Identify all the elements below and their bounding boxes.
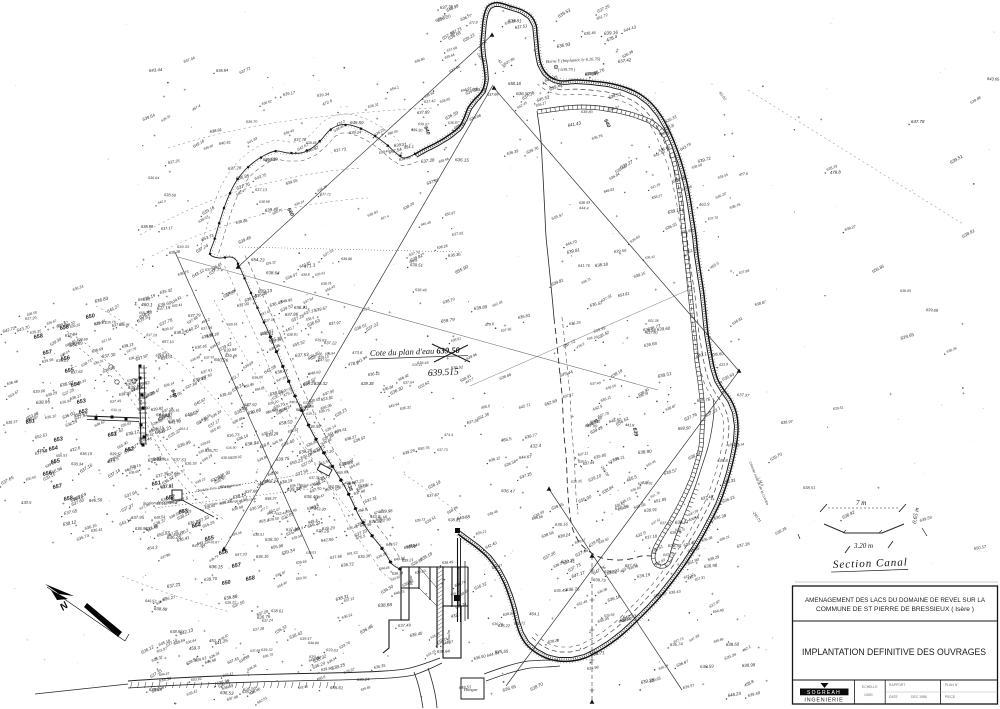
svg-text:637.49: 637.49 — [398, 623, 412, 628]
svg-text:636.47: 636.47 — [501, 488, 516, 494]
svg-text:640.61: 640.61 — [218, 139, 231, 146]
svg-text:431.5: 431.5 — [177, 495, 189, 503]
svg-text:Chemin rural dit de la Combe: Chemin rural dit de la Combe — [748, 461, 769, 506]
svg-text:659.79: 659.79 — [440, 317, 455, 324]
svg-text:638.88: 638.88 — [190, 355, 201, 363]
svg-text:637.28: 637.28 — [253, 627, 266, 632]
svg-text:636.59: 636.59 — [444, 110, 459, 121]
svg-text:640.26: 640.26 — [214, 357, 229, 363]
svg-text:636.41: 636.41 — [412, 363, 422, 367]
svg-text:639.34: 639.34 — [326, 656, 337, 665]
svg-text:460.5: 460.5 — [357, 507, 368, 513]
svg-text:643.65: 643.65 — [987, 76, 1000, 82]
svg-text:638.98: 638.98 — [141, 390, 156, 400]
svg-text:638.51: 638.51 — [803, 485, 816, 490]
svg-text:658: 658 — [33, 333, 44, 341]
svg-text:636.53: 636.53 — [220, 690, 234, 696]
svg-text:636.21: 636.21 — [368, 371, 381, 377]
svg-text:639.70: 639.70 — [204, 576, 218, 582]
svg-text:650.57: 650.57 — [973, 544, 987, 551]
svg-text:638.37: 638.37 — [607, 105, 620, 112]
svg-text:636.55: 636.55 — [664, 221, 678, 231]
svg-text:636.25: 636.25 — [715, 192, 727, 200]
svg-text:647.78: 647.78 — [911, 119, 925, 124]
svg-text:639.75: 639.75 — [318, 408, 330, 414]
svg-text:636.21: 636.21 — [719, 535, 730, 542]
svg-text:636.16: 636.16 — [256, 554, 269, 559]
svg-text:656.53: 656.53 — [56, 453, 68, 458]
svg-text:639.33: 639.33 — [177, 244, 190, 249]
svg-text:646.67: 646.67 — [193, 396, 207, 407]
svg-text:637.70: 637.70 — [708, 216, 719, 221]
svg-text:636.86: 636.86 — [235, 218, 248, 225]
svg-text:637.24: 637.24 — [195, 243, 210, 254]
svg-text:637.43: 637.43 — [260, 309, 271, 317]
svg-text:637.29: 637.29 — [65, 418, 79, 428]
svg-text:649.52: 649.52 — [145, 599, 156, 603]
svg-text:642.40: 642.40 — [484, 540, 498, 550]
svg-text:638.64: 638.64 — [266, 270, 280, 275]
svg-text:641.94: 641.94 — [355, 354, 369, 365]
svg-text:639.64: 639.64 — [345, 481, 356, 485]
svg-text:638.77: 638.77 — [524, 432, 538, 440]
svg-text:639.53: 639.53 — [557, 7, 572, 19]
svg-text:639.41: 639.41 — [222, 671, 234, 678]
svg-text:639.73: 639.73 — [593, 577, 607, 583]
svg-text:639.96: 639.96 — [466, 352, 479, 361]
svg-text:654.40: 654.40 — [712, 608, 724, 614]
svg-text:636.70: 636.70 — [246, 120, 258, 124]
svg-text:637.73: 637.73 — [333, 146, 347, 153]
svg-text:637.70: 637.70 — [597, 410, 611, 419]
svg-text:646.56: 646.56 — [89, 497, 103, 503]
svg-text:-50.02: -50.02 — [717, 90, 727, 102]
svg-text:642.71: 642.71 — [518, 402, 531, 410]
svg-text:COMMUNE DE ST PIERRE DE BRESSI: COMMUNE DE ST PIERRE DE BRESSIEUX ( Isèr… — [816, 606, 974, 613]
svg-text:473.5: 473.5 — [361, 306, 370, 313]
svg-text:639.32: 639.32 — [159, 287, 173, 295]
svg-text:651: 651 — [107, 431, 117, 439]
svg-text:653.61: 653.61 — [191, 677, 202, 682]
svg-text:636.57: 636.57 — [585, 71, 599, 76]
svg-text:639.23: 639.23 — [462, 32, 476, 43]
svg-text:639.96: 639.96 — [468, 112, 482, 122]
svg-text:652.48: 652.48 — [576, 599, 589, 607]
svg-text:655.90: 655.90 — [454, 264, 469, 275]
svg-text:638.40: 638.40 — [409, 630, 423, 638]
svg-text:636.20: 636.20 — [376, 552, 388, 560]
svg-text:656.85: 656.85 — [871, 263, 885, 274]
svg-text:639.51: 639.51 — [657, 371, 672, 379]
svg-text:637.35: 637.35 — [440, 4, 454, 10]
svg-text:639.93: 639.93 — [314, 271, 325, 277]
svg-text:440.7: 440.7 — [284, 324, 296, 333]
svg-text:636.74: 636.74 — [670, 641, 684, 647]
svg-text:637.28: 637.28 — [228, 165, 242, 171]
svg-text:636.55: 636.55 — [605, 384, 617, 391]
svg-text:651: 651 — [25, 418, 35, 426]
svg-text:636.87: 636.87 — [369, 519, 383, 524]
svg-text:655.96: 655.96 — [270, 543, 284, 550]
svg-text:637.19: 637.19 — [157, 305, 171, 311]
svg-text:638.91: 638.91 — [961, 228, 976, 239]
svg-text:-52.98: -52.98 — [496, 58, 507, 69]
svg-text:639.68: 639.68 — [247, 407, 262, 416]
svg-text:636.15: 636.15 — [455, 157, 470, 163]
svg-text:637.89: 637.89 — [417, 109, 430, 115]
svg-text:AMENAGEMENT DES LACS DU DOMAIN: AMENAGEMENT DES LACS DU DOMAINE DE REVEL… — [805, 597, 986, 604]
svg-text:638.70: 638.70 — [442, 296, 456, 305]
svg-text:639.19: 639.19 — [636, 572, 651, 579]
svg-text:459.3: 459.3 — [189, 645, 201, 651]
svg-text:639.43: 639.43 — [283, 129, 294, 136]
svg-text:432.4: 432.4 — [530, 443, 542, 449]
svg-text:641.76: 641.76 — [578, 263, 591, 268]
svg-text:639.17: 639.17 — [282, 90, 296, 97]
svg-text:639.70: 639.70 — [769, 451, 783, 462]
svg-text:639.10: 639.10 — [587, 473, 602, 483]
svg-text:649.63: 649.63 — [603, 187, 614, 194]
svg-text:639.98: 639.98 — [308, 641, 319, 645]
svg-text:639.98: 639.98 — [586, 664, 599, 671]
svg-text:455.5: 455.5 — [626, 474, 639, 483]
svg-text:478.9: 478.9 — [576, 342, 586, 350]
svg-text:638.90: 638.90 — [638, 449, 653, 455]
svg-text:Borne Y (Implantée le 6.10.76): Borne Y (Implantée le 6.10.76) — [546, 56, 601, 64]
svg-text:637.37: 637.37 — [120, 502, 135, 513]
svg-text:638.87: 638.87 — [665, 404, 678, 412]
svg-text:638.65: 638.65 — [900, 289, 911, 293]
svg-text:639.59: 639.59 — [919, 515, 933, 523]
svg-text:ferme: ferme — [408, 575, 413, 585]
svg-text:637.22: 637.22 — [324, 340, 337, 345]
svg-text:639.76: 639.76 — [525, 145, 539, 155]
svg-text:636.83: 636.83 — [367, 210, 379, 218]
svg-text:639.24: 639.24 — [557, 532, 571, 539]
svg-text:639.18: 639.18 — [242, 360, 254, 370]
svg-text:637.14: 637.14 — [107, 467, 122, 478]
svg-text:460.1: 460.1 — [141, 302, 153, 307]
svg-text:653.62: 653.62 — [417, 379, 431, 390]
svg-text:636.29: 636.29 — [569, 319, 582, 326]
svg-text:640: 640 — [422, 126, 431, 136]
svg-text:636.27: 636.27 — [162, 594, 176, 602]
svg-text:636.92: 636.92 — [841, 509, 856, 520]
svg-text:645.48: 645.48 — [420, 220, 431, 227]
svg-text:639.15: 639.15 — [633, 270, 647, 279]
svg-text:636.10: 636.10 — [44, 414, 57, 420]
svg-text:647.30: 647.30 — [276, 375, 287, 383]
svg-text:652.69: 652.69 — [544, 398, 559, 407]
svg-text:639.68: 639.68 — [713, 637, 724, 644]
svg-text:639.64: 639.64 — [444, 53, 455, 60]
svg-text:641.43: 641.43 — [567, 120, 582, 128]
svg-text:637.25: 637.25 — [167, 158, 180, 165]
svg-text:473.6: 473.6 — [352, 350, 363, 355]
svg-text:637.51: 637.51 — [514, 23, 527, 30]
svg-text:649.94: 649.94 — [388, 402, 400, 409]
svg-text:636.83: 636.83 — [120, 421, 131, 428]
svg-text:637.42: 637.42 — [424, 99, 437, 104]
svg-text:653.81: 653.81 — [617, 291, 630, 298]
svg-text:464.3: 464.3 — [146, 544, 158, 551]
svg-text:646.27: 646.27 — [106, 303, 120, 314]
svg-text:639.51: 639.51 — [949, 154, 964, 165]
svg-text:651.36: 651.36 — [648, 319, 659, 323]
svg-text:637.66: 637.66 — [487, 92, 500, 97]
svg-text:653: 653 — [53, 436, 64, 444]
svg-text:638.81: 638.81 — [209, 127, 222, 134]
svg-text:636.14: 636.14 — [163, 381, 175, 388]
svg-text:636.73: 636.73 — [227, 432, 241, 438]
svg-text:638.68: 638.68 — [378, 602, 393, 608]
svg-text:638.33: 638.33 — [608, 91, 622, 100]
svg-text:638.46: 638.46 — [254, 290, 269, 299]
svg-text:465.5: 465.5 — [500, 436, 512, 443]
svg-text:639.56: 639.56 — [614, 248, 628, 254]
svg-text:638.50: 638.50 — [726, 642, 740, 647]
svg-text:639.14: 639.14 — [294, 199, 305, 207]
svg-text:655.61: 655.61 — [330, 685, 344, 690]
svg-text:639.81: 639.81 — [566, 247, 581, 255]
svg-text:639.16: 639.16 — [201, 205, 216, 216]
svg-text:637.43: 637.43 — [227, 656, 241, 665]
svg-text:647.89: 647.89 — [689, 634, 701, 643]
svg-text:636.31: 636.31 — [367, 103, 379, 109]
svg-text:638.85: 638.85 — [439, 97, 451, 104]
svg-text:464.4: 464.4 — [179, 427, 188, 431]
svg-text:638.71: 638.71 — [80, 358, 93, 368]
svg-text:637.95: 637.95 — [500, 327, 511, 333]
svg-text:637.31: 637.31 — [364, 495, 378, 504]
svg-text:637.97: 637.97 — [329, 320, 342, 326]
svg-text:638.18: 638.18 — [595, 261, 609, 268]
svg-text:651.29: 651.29 — [620, 617, 633, 622]
svg-text:639.84: 639.84 — [604, 613, 615, 618]
svg-text:637.78: 637.78 — [159, 317, 174, 327]
svg-text:641.29: 641.29 — [650, 182, 661, 190]
svg-text:636.90: 636.90 — [226, 446, 237, 450]
svg-text:636.51: 636.51 — [341, 613, 353, 620]
svg-text:650.66: 650.66 — [25, 475, 36, 482]
svg-text:636.33: 636.33 — [72, 284, 85, 292]
svg-text:458.8: 458.8 — [743, 678, 755, 688]
svg-text:637.33: 637.33 — [322, 248, 335, 258]
svg-text:639.30: 639.30 — [411, 128, 423, 132]
svg-text:658.81: 658.81 — [254, 386, 265, 392]
svg-text:637.18: 637.18 — [286, 526, 300, 532]
svg-text:639.70: 639.70 — [338, 639, 352, 649]
svg-text:636.39: 636.39 — [506, 148, 520, 156]
svg-text:638.31: 638.31 — [321, 281, 332, 286]
svg-text:454.1: 454.1 — [389, 84, 400, 92]
svg-text:636.65: 636.65 — [194, 343, 208, 350]
svg-text:N: N — [58, 600, 71, 614]
svg-text:636.19: 636.19 — [80, 451, 93, 456]
svg-text:636.66: 636.66 — [252, 375, 264, 380]
svg-text:636.84: 636.84 — [609, 172, 621, 181]
svg-text:639.51: 639.51 — [410, 262, 423, 268]
svg-text:636.50: 636.50 — [380, 584, 395, 595]
svg-text:647.17: 647.17 — [571, 570, 586, 579]
svg-text:638.43: 638.43 — [669, 588, 682, 595]
svg-text:638.61: 638.61 — [271, 608, 283, 613]
svg-text:638.48: 638.48 — [415, 288, 428, 292]
svg-text:636.16: 636.16 — [555, 522, 569, 527]
svg-text:659.50: 659.50 — [678, 425, 692, 431]
svg-text:649.19: 649.19 — [201, 454, 213, 463]
svg-text:636.22: 636.22 — [498, 623, 511, 628]
svg-text:639.40: 639.40 — [281, 438, 296, 448]
svg-text:RAPPORT: RAPPORT — [889, 683, 905, 687]
svg-text:639.51: 639.51 — [424, 514, 437, 524]
svg-text:637.90: 637.90 — [236, 301, 250, 308]
svg-text:638.58: 638.58 — [691, 163, 703, 170]
svg-text:638.56: 638.56 — [541, 530, 555, 539]
svg-text:644.67: 644.67 — [519, 454, 533, 460]
svg-text:638.66: 638.66 — [499, 371, 513, 381]
svg-text:650.90: 650.90 — [296, 576, 307, 581]
svg-text:638.57: 638.57 — [663, 467, 678, 476]
svg-text:658.37: 658.37 — [265, 497, 278, 501]
svg-text:639.38: 639.38 — [361, 381, 374, 386]
svg-text:653: 653 — [76, 398, 87, 406]
svg-text:636.29: 636.29 — [553, 560, 565, 569]
svg-text:433.9: 433.9 — [719, 362, 728, 367]
svg-text:639.72: 639.72 — [697, 156, 712, 164]
svg-text:641.83: 641.83 — [247, 136, 258, 144]
svg-text:638.65: 638.65 — [590, 419, 601, 424]
svg-text:Moulin: Moulin — [446, 629, 451, 644]
svg-text:644.43: 644.43 — [623, 24, 637, 33]
svg-text:638.36: 638.36 — [448, 252, 462, 258]
svg-text:462.2: 462.2 — [742, 645, 752, 653]
svg-text:Conduite PVC 125 refoulement: Conduite PVC 125 refoulement — [196, 483, 243, 493]
svg-text:639.31: 639.31 — [160, 114, 171, 123]
svg-text:463.9: 463.9 — [699, 201, 710, 207]
svg-text:643.12: 643.12 — [191, 267, 206, 278]
svg-text:644.70: 644.70 — [565, 239, 578, 247]
svg-text:636.58: 636.58 — [308, 424, 321, 429]
svg-text:655.49: 655.49 — [243, 382, 254, 389]
svg-text:639.23: 639.23 — [334, 407, 348, 418]
svg-text:( 639.79 ): ( 639.79 ) — [558, 67, 576, 72]
svg-text:638.22: 638.22 — [195, 477, 206, 485]
svg-text:637.51: 637.51 — [101, 337, 112, 344]
svg-text:653.67: 653.67 — [8, 389, 21, 399]
svg-text:638.31: 638.31 — [111, 408, 122, 412]
svg-text:638.12: 638.12 — [62, 519, 77, 527]
svg-text:636.80: 636.80 — [414, 57, 425, 64]
svg-text:658.27: 658.27 — [651, 193, 663, 200]
svg-text:639.32: 639.32 — [265, 260, 276, 266]
svg-text:658.89: 658.89 — [447, 505, 460, 515]
svg-text:637.81: 637.81 — [451, 230, 464, 237]
svg-text:639.50: 639.50 — [414, 569, 426, 575]
svg-text:636.72: 636.72 — [340, 561, 354, 568]
svg-text:464.1: 464.1 — [529, 611, 540, 617]
svg-text:639.80: 639.80 — [593, 452, 607, 460]
svg-text:637.72: 637.72 — [238, 65, 252, 75]
svg-text:636.80: 636.80 — [630, 486, 641, 493]
svg-text:649.73: 649.73 — [393, 590, 405, 596]
svg-text:637.54: 637.54 — [303, 297, 314, 305]
svg-text:638.40: 638.40 — [219, 390, 233, 398]
svg-text:637.18: 637.18 — [644, 533, 658, 540]
svg-text:636.83: 636.83 — [517, 312, 531, 320]
svg-text:636.35: 636.35 — [373, 662, 386, 670]
svg-text:639.515: 639.515 — [428, 367, 460, 379]
svg-text:637.31: 637.31 — [309, 476, 320, 480]
svg-text:644.45: 644.45 — [379, 566, 390, 571]
svg-text:434.8: 434.8 — [301, 273, 310, 277]
svg-text:638.43: 638.43 — [579, 201, 590, 205]
svg-text:636.15: 636.15 — [209, 564, 223, 569]
svg-text:651.89: 651.89 — [653, 496, 667, 504]
svg-text:636.31: 636.31 — [400, 405, 412, 411]
svg-text:652.48: 652.48 — [492, 300, 503, 308]
svg-text:637.65: 637.65 — [0, 475, 15, 486]
svg-text:639.45: 639.45 — [306, 141, 316, 145]
svg-text:649.44: 649.44 — [559, 369, 574, 378]
svg-text:DATE: DATE — [889, 695, 899, 699]
svg-text:465.6: 465.6 — [259, 518, 271, 524]
svg-text:637.21: 637.21 — [166, 582, 181, 589]
svg-text:657: 657 — [52, 483, 63, 491]
svg-text:637.33: 637.33 — [608, 457, 620, 465]
svg-text:637.66: 637.66 — [330, 553, 344, 560]
svg-text:637.40: 637.40 — [590, 381, 601, 386]
svg-text:636.98: 636.98 — [597, 587, 608, 595]
svg-text:655.89: 655.89 — [337, 470, 348, 475]
svg-text:1/500: 1/500 — [864, 693, 873, 697]
svg-text:652.45: 652.45 — [516, 101, 527, 110]
svg-text:637.11: 637.11 — [577, 451, 588, 457]
svg-text:639.91: 639.91 — [185, 656, 198, 666]
svg-text:639.60: 639.60 — [629, 235, 640, 244]
svg-text:639.63: 639.63 — [326, 647, 339, 653]
svg-text:639.57: 639.57 — [110, 452, 123, 456]
svg-text:636.32: 636.32 — [645, 255, 656, 260]
svg-text:639.39: 639.39 — [265, 156, 279, 163]
svg-text:638.46: 638.46 — [584, 30, 597, 36]
svg-text:638.47: 638.47 — [274, 368, 288, 375]
svg-text:637.45: 637.45 — [574, 547, 589, 558]
svg-text:637.37: 637.37 — [737, 392, 750, 398]
svg-text:637.73: 637.73 — [437, 448, 448, 452]
svg-text:638.89: 638.89 — [387, 129, 398, 136]
svg-text:636.26: 636.26 — [946, 346, 957, 354]
svg-text:DEC 1986: DEC 1986 — [911, 695, 927, 699]
svg-text:636.33: 636.33 — [664, 114, 678, 124]
svg-text:636.97: 636.97 — [285, 271, 299, 281]
svg-text:636.64: 636.64 — [216, 68, 229, 73]
svg-text:639.21: 639.21 — [306, 412, 317, 416]
svg-text:637.95: 637.95 — [131, 515, 145, 520]
svg-text:650.76: 650.76 — [418, 446, 431, 451]
svg-text:639.32: 639.32 — [261, 648, 274, 652]
svg-text:637.64: 637.64 — [403, 380, 414, 385]
svg-text:659.61: 659.61 — [227, 322, 238, 327]
svg-text:639.58: 639.58 — [291, 534, 303, 541]
svg-text:7 m: 7 m — [856, 499, 866, 507]
svg-text:639.19: 639.19 — [130, 463, 141, 468]
svg-text:479.6: 479.6 — [485, 322, 494, 327]
svg-text:655.92: 655.92 — [292, 339, 306, 348]
svg-text:639.29: 639.29 — [707, 554, 721, 562]
svg-text:644.94: 644.94 — [486, 650, 500, 658]
svg-text:637.87: 637.87 — [427, 492, 440, 498]
